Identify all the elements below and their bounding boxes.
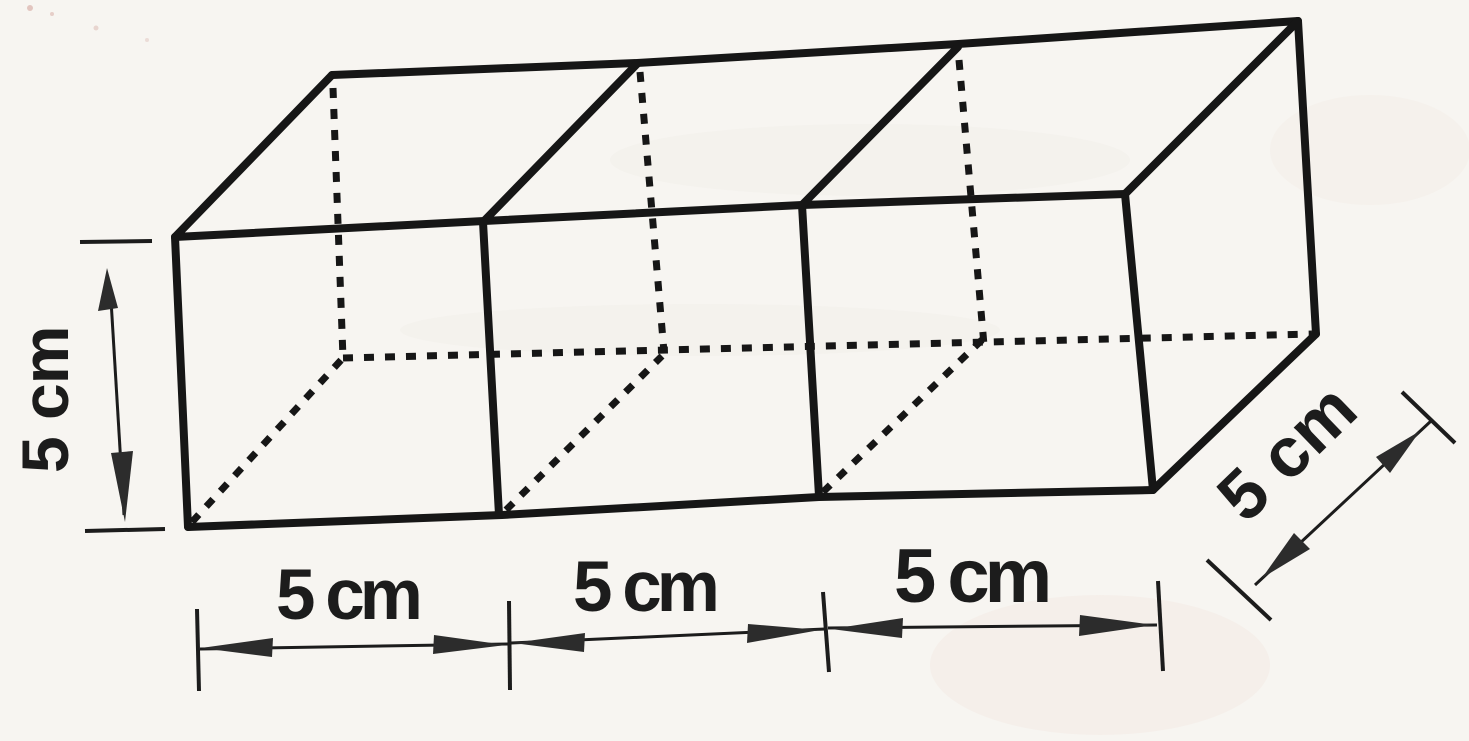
svg-text:5 cm: 5 cm [8, 327, 82, 473]
svg-text:5 cm: 5 cm [573, 548, 716, 627]
svg-text:5 cm: 5 cm [276, 556, 419, 635]
svg-text:5 cm: 5 cm [894, 534, 1048, 619]
